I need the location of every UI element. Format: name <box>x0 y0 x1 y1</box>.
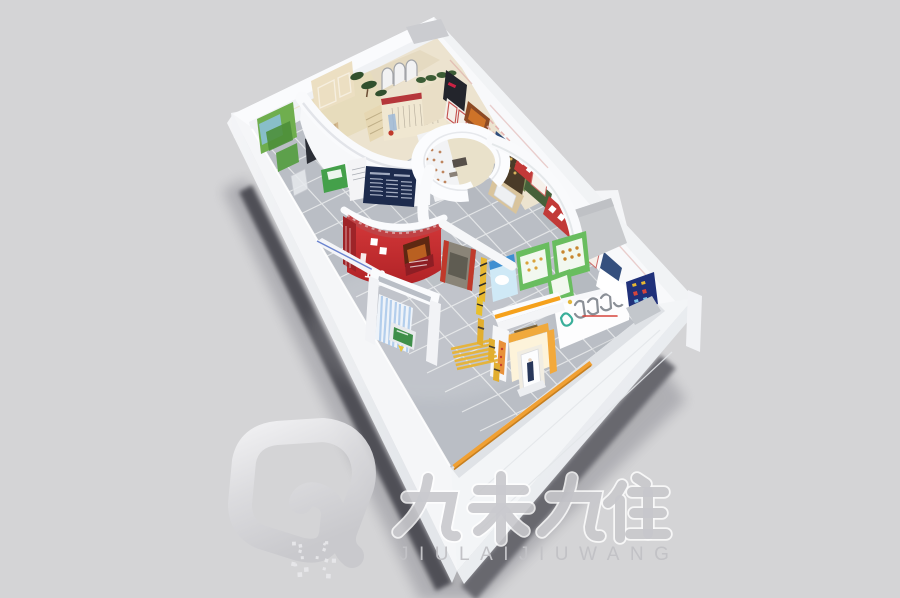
svg-text:JIULAIJIUWANG: JIULAIJIUWANG <box>399 544 679 565</box>
